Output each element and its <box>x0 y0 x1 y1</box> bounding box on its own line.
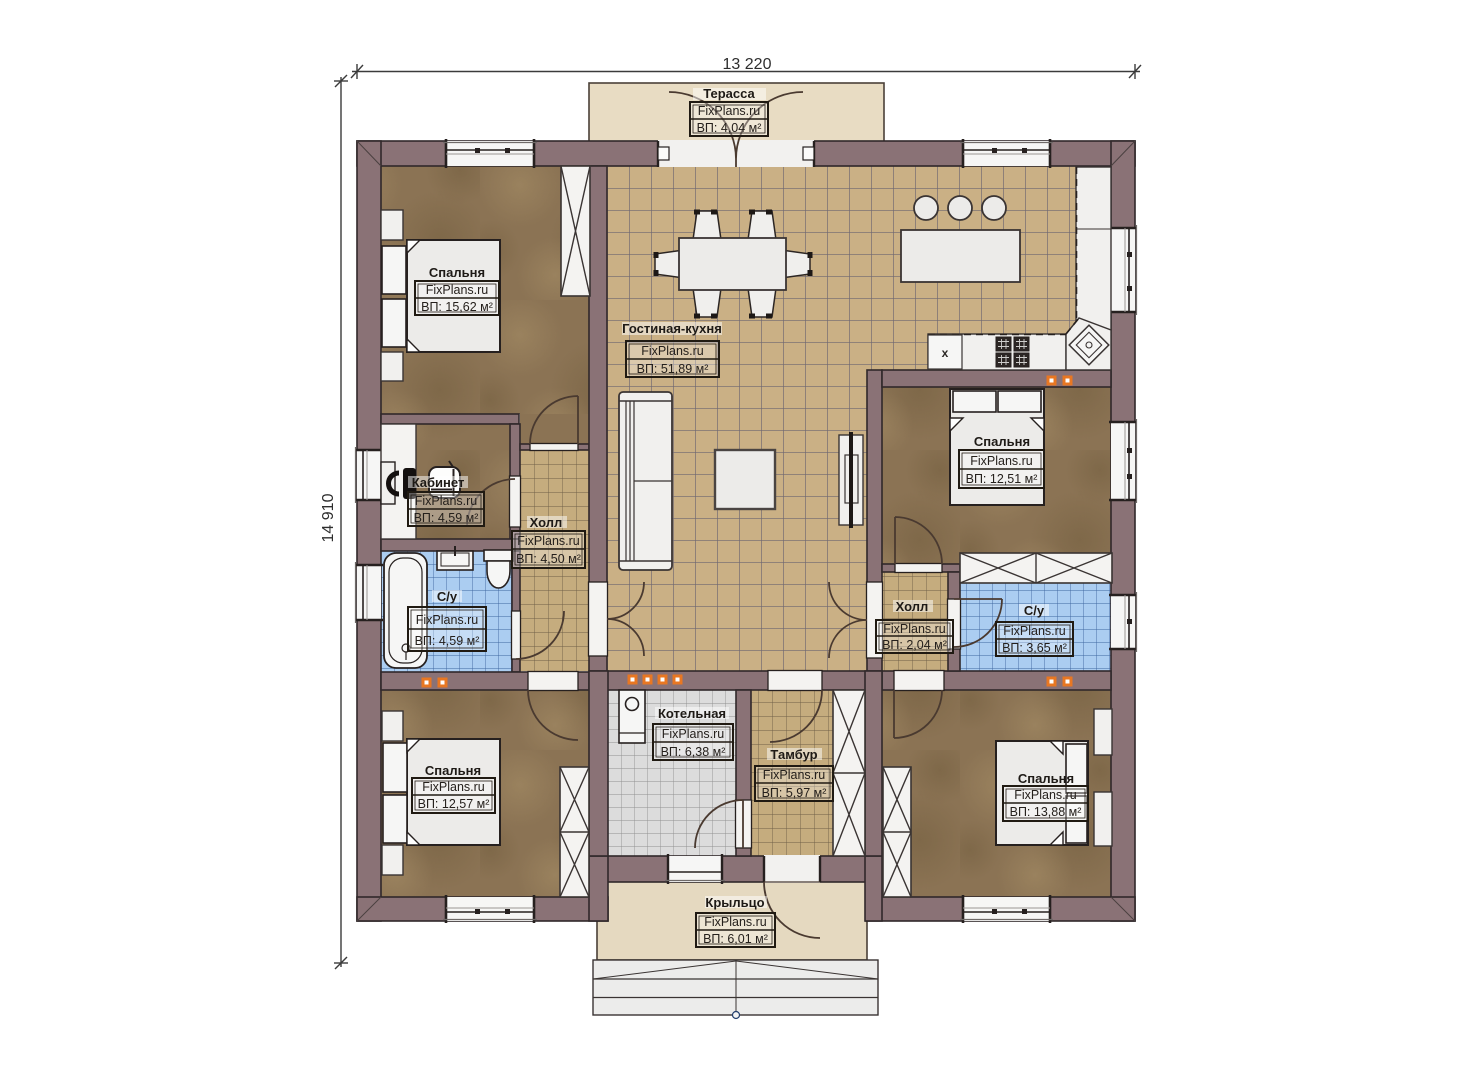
svg-text:Спальня: Спальня <box>429 265 485 280</box>
svg-text:FixPlans.ru: FixPlans.ru <box>422 780 485 794</box>
svg-text:ВП: 13,88 м²: ВП: 13,88 м² <box>1010 805 1082 819</box>
svg-text:ВП: 6,38 м²: ВП: 6,38 м² <box>661 745 726 759</box>
svg-text:ВП: 2,04 м²: ВП: 2,04 м² <box>882 638 947 652</box>
svg-text:FixPlans.ru: FixPlans.ru <box>415 494 478 508</box>
svg-text:Холл: Холл <box>896 599 929 614</box>
svg-text:Спальня: Спальня <box>974 434 1030 449</box>
svg-text:ВП: 4,04 м²: ВП: 4,04 м² <box>697 121 762 135</box>
svg-text:ВП: 12,51 м²: ВП: 12,51 м² <box>966 472 1038 486</box>
svg-text:С/у: С/у <box>437 589 458 604</box>
svg-text:FixPlans.ru: FixPlans.ru <box>970 454 1033 468</box>
svg-text:Спальня: Спальня <box>425 763 481 778</box>
svg-text:Крыльцо: Крыльцо <box>705 895 764 910</box>
svg-text:Гостиная-кухня: Гостиная-кухня <box>622 321 722 336</box>
svg-text:ВП: 12,57 м²: ВП: 12,57 м² <box>418 797 490 811</box>
svg-text:FixPlans.ru: FixPlans.ru <box>763 768 826 782</box>
svg-text:FixPlans.ru: FixPlans.ru <box>641 344 704 358</box>
svg-text:ВП: 4,50 м²: ВП: 4,50 м² <box>516 552 581 566</box>
svg-text:Тамбур: Тамбур <box>770 747 817 762</box>
svg-text:FixPlans.ru: FixPlans.ru <box>416 613 479 627</box>
svg-text:ВП: 6,01 м²: ВП: 6,01 м² <box>703 932 768 946</box>
svg-text:FixPlans.ru: FixPlans.ru <box>517 534 580 548</box>
svg-text:ВП: 51,89 м²: ВП: 51,89 м² <box>637 362 709 376</box>
svg-text:ВП: 5,97 м²: ВП: 5,97 м² <box>762 786 827 800</box>
svg-text:FixPlans.ru: FixPlans.ru <box>704 915 767 929</box>
svg-text:FixPlans.ru: FixPlans.ru <box>426 283 489 297</box>
svg-text:13 220: 13 220 <box>723 56 772 73</box>
svg-text:ВП: 3,65 м²: ВП: 3,65 м² <box>1002 641 1067 655</box>
svg-text:FixPlans.ru: FixPlans.ru <box>883 622 946 636</box>
svg-text:x: x <box>942 346 949 360</box>
svg-text:14 910: 14 910 <box>320 493 337 542</box>
svg-text:FixPlans.ru: FixPlans.ru <box>662 727 725 741</box>
svg-text:Кабинет: Кабинет <box>412 475 465 490</box>
svg-text:FixPlans.ru: FixPlans.ru <box>698 104 761 118</box>
svg-text:ВП: 4,59 м²: ВП: 4,59 м² <box>415 634 480 648</box>
svg-text:FixPlans.ru: FixPlans.ru <box>1014 788 1077 802</box>
svg-text:С/у: С/у <box>1024 603 1045 618</box>
svg-text:Холл: Холл <box>530 515 563 530</box>
svg-text:ВП: 4,59 м²: ВП: 4,59 м² <box>414 511 479 525</box>
svg-text:Терасса: Терасса <box>703 86 755 101</box>
svg-text:FixPlans.ru: FixPlans.ru <box>1003 624 1066 638</box>
svg-text:Котельная: Котельная <box>658 706 726 721</box>
svg-text:Спальня: Спальня <box>1018 771 1074 786</box>
svg-text:ВП: 15,62 м²: ВП: 15,62 м² <box>421 300 493 314</box>
